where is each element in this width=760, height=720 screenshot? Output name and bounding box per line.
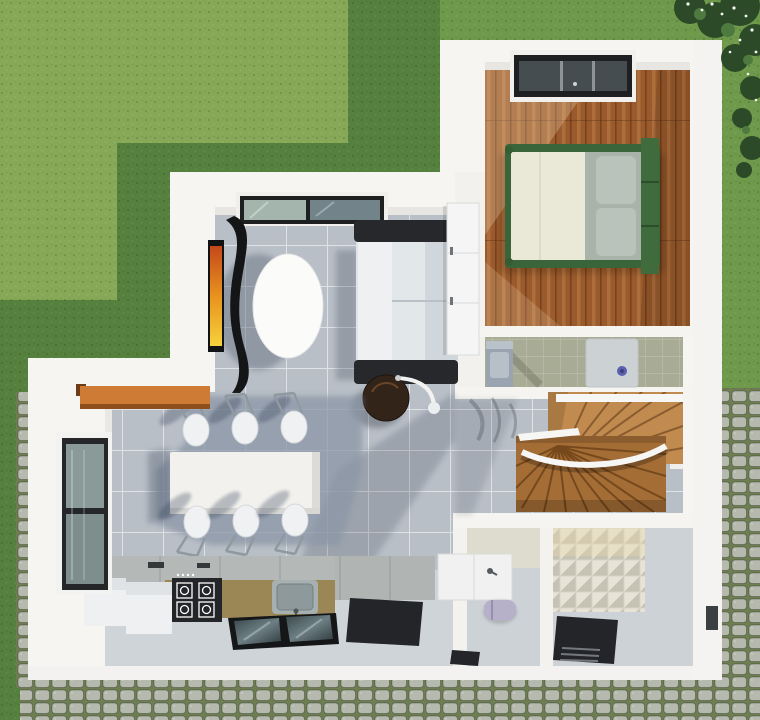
window-mullion xyxy=(592,61,595,91)
handrail-top xyxy=(556,394,683,402)
window-glass xyxy=(519,61,627,91)
chair-seat xyxy=(232,412,258,444)
toilet-bowl xyxy=(484,600,516,620)
chair-seat xyxy=(233,505,259,537)
basin-top xyxy=(486,341,513,349)
footboard-knob xyxy=(505,146,513,154)
east-door-glass xyxy=(706,606,718,630)
lower-shade xyxy=(516,500,666,512)
chair-seat xyxy=(184,506,210,538)
cobblestone-bottom-path xyxy=(20,678,760,720)
window-glass-left xyxy=(244,200,306,220)
shower-drain-center xyxy=(620,369,624,373)
shower-tray xyxy=(586,339,638,387)
wall-east-band xyxy=(693,40,722,680)
arc-lamp-base xyxy=(395,375,401,381)
feature-wall-warm-light xyxy=(553,528,645,556)
chair-seat xyxy=(183,414,209,446)
breakfast-bar xyxy=(76,384,210,409)
wardrobe xyxy=(443,203,479,355)
coffee-table-top xyxy=(363,375,409,421)
entrance-doormat xyxy=(450,650,480,666)
kitchen-floor-mat xyxy=(346,598,423,646)
table-edge-shade xyxy=(312,452,320,514)
cobble-stones xyxy=(16,392,30,688)
glass-floor-panel xyxy=(228,613,339,650)
cobble-stones xyxy=(20,678,760,720)
kitchen-window xyxy=(56,432,112,594)
washbasin-cabinet xyxy=(486,341,513,387)
double-bed xyxy=(505,138,660,274)
sofa-seat-cushion xyxy=(358,242,392,360)
footboard-knob xyxy=(505,258,513,266)
cabinet-vent xyxy=(197,563,210,568)
window-glass-right xyxy=(310,200,380,220)
appliance-top xyxy=(126,582,172,595)
pillow xyxy=(596,208,636,256)
toilet xyxy=(483,600,517,624)
chair-seat xyxy=(281,411,307,443)
black-shower-mat xyxy=(553,616,618,664)
wall-hall-south xyxy=(453,513,693,528)
bedroom-roof-window xyxy=(510,50,636,102)
tv-screen xyxy=(210,246,222,346)
sofa-armrest-top xyxy=(354,220,458,242)
cabinet-right xyxy=(335,556,435,600)
cobblestone-left-path xyxy=(16,392,30,688)
wardrobe-handle xyxy=(450,297,453,305)
wardrobe-body xyxy=(447,203,479,355)
vanity-counter xyxy=(438,554,512,600)
pillow xyxy=(596,156,636,204)
oval-side-table xyxy=(253,254,323,358)
sink-basin xyxy=(277,584,313,610)
floor-plan-render xyxy=(0,0,760,720)
arc-lamp-head xyxy=(428,402,440,414)
cobble-stones xyxy=(722,388,760,720)
vanity-top xyxy=(438,554,512,600)
cabinet-vent xyxy=(148,562,164,568)
window-handle xyxy=(573,82,577,86)
shower-area xyxy=(553,616,618,664)
sofa-side-shadow xyxy=(336,250,358,380)
shower-base xyxy=(586,339,638,387)
headboard xyxy=(641,138,659,274)
bar-edge xyxy=(80,404,210,409)
stairs-lower-flight xyxy=(516,436,666,512)
window-mullion xyxy=(560,61,563,91)
cobblestone-right-path xyxy=(722,388,760,720)
wall-bedroom-bath xyxy=(455,326,722,337)
kitchen-sink xyxy=(272,580,318,618)
gas-hob xyxy=(172,574,222,622)
bed-duvet xyxy=(511,152,585,260)
wall-south-band xyxy=(28,666,722,680)
basin-bowl xyxy=(490,352,509,378)
wall-corridor-right xyxy=(540,528,553,666)
wardrobe-handle xyxy=(450,247,453,255)
chair-seat xyxy=(282,504,308,536)
